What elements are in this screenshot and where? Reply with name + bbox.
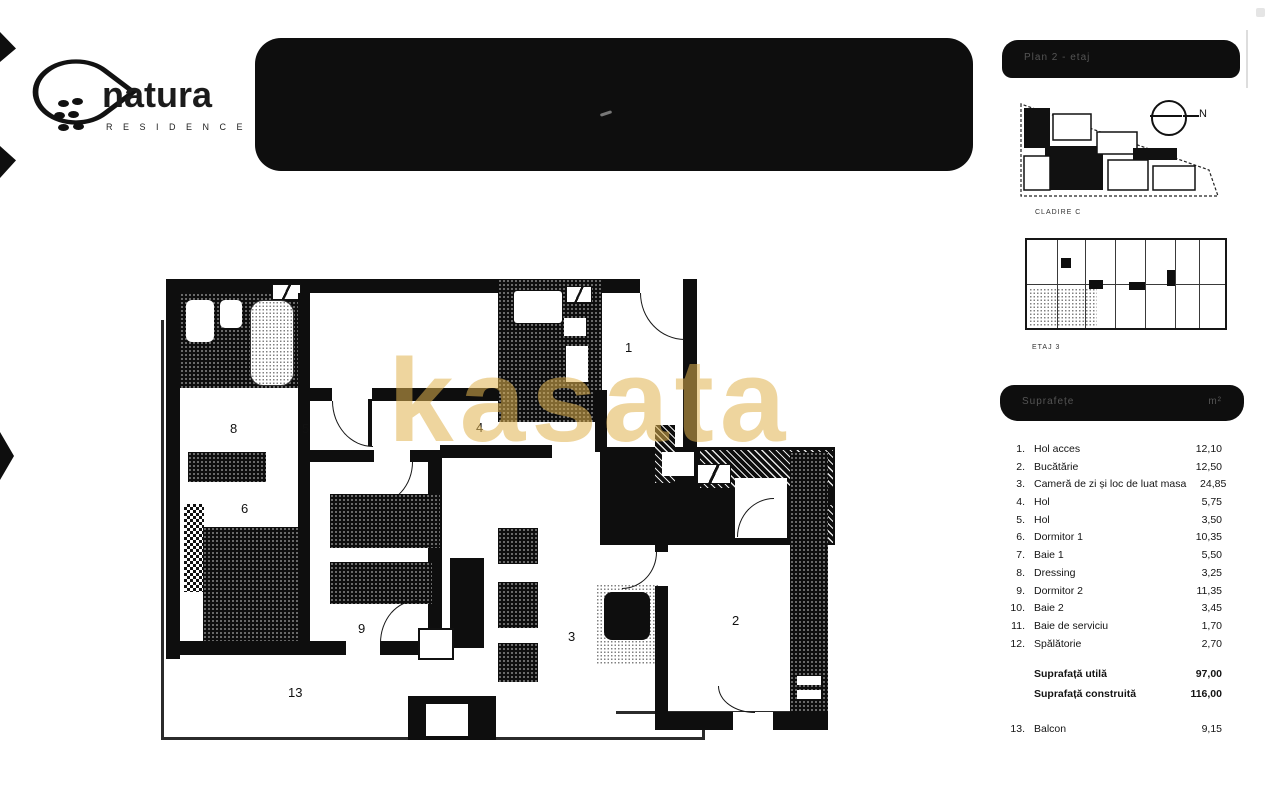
areas-header-bar: Suprafețe m² [1000,385,1244,421]
room-number-dorm2: 9 [358,621,365,636]
bed [203,527,300,643]
room-number-kitchen: 2 [732,613,739,628]
wardrobe [188,452,266,482]
table-row: 6.Dormitor 110,35 [1005,531,1222,549]
furniture [498,582,538,628]
room-number-living: 3 [568,629,575,644]
wall [298,293,310,400]
entrance-door-arc [640,293,685,340]
table-row: 1.Hol acces12,10 [1005,443,1222,461]
sink-symbol [797,690,821,699]
table-row: 10.Baie 23,45 [1005,602,1222,620]
storey-plan [1025,238,1227,330]
areas-header-left: Suprafețe [1022,396,1074,407]
table-row: 5.Hol3,50 [1005,514,1222,532]
site-plan: N [1013,96,1233,208]
vent-symbol [566,286,592,303]
bed [330,494,440,548]
table-row: 4.Hol5,75 [1005,496,1222,514]
table-row: 11.Baie de serviciu1,70 [1005,620,1222,638]
compass-north-label: N [1199,108,1207,120]
room-number-hol5: 5 [302,421,309,436]
totals: Suprafață utilă97,00 Suprafață construit… [1005,668,1222,708]
door-leaf [368,399,372,446]
washer [514,291,562,323]
table-row: 13.Balcon9,15 [1005,723,1222,741]
room-area-list: 1.Hol acces12,10 2.Bucătărie12,50 3.Came… [1005,443,1222,655]
storey-plan-label: ETAJ 3 [1032,344,1060,351]
total-usable-area: Suprafață utilă97,00 [1005,668,1222,688]
vent-symbol [697,464,731,484]
wall [178,641,418,655]
scanned-floorplan-page: natura R E S I D E N C E [0,0,1280,795]
kitchen-counter [790,452,828,728]
sink [564,318,586,336]
door-gap [655,552,668,586]
storey-plan-highlight [1029,288,1097,326]
bookshelf [450,558,484,648]
stove-symbol [797,676,821,685]
door-arc [332,401,373,447]
table-row: 12.Spălătorie2,70 [1005,638,1222,656]
balcony-row: 13.Balcon9,15 [1005,723,1222,741]
sink [186,300,214,342]
door-arc [718,686,755,713]
kasata-watermark: kasata [388,342,791,460]
areas-header-right: m² [1208,396,1222,407]
door-gap [346,641,380,655]
bathtub [250,300,294,386]
wall [166,279,697,293]
scan-artifact [1256,8,1265,17]
door-gap [332,388,372,401]
table-row: 9.Dormitor 211,35 [1005,585,1222,603]
balcony-outline [161,320,164,740]
table-row: 2.Bucătărie12,50 [1005,461,1222,479]
plan-header-text: Plan 2 - etaj [1024,52,1090,63]
site-plan-label: CLADIRE C [1035,209,1081,216]
wall [166,279,180,659]
door-gap [640,279,684,293]
radiator [184,504,204,592]
plan-header-bar: Plan 2 - etaj [1002,40,1240,78]
threshold [418,628,454,660]
room-number-balcony: 13 [288,685,302,700]
terrace-steps-inner [426,704,468,736]
total-built-area: Suprafață construită116,00 [1005,688,1222,708]
door-gap [733,712,773,730]
toilet [220,300,242,328]
compass-icon: N [1151,100,1211,136]
room-number-dorm1: 6 [241,501,248,516]
scan-artifact [1246,30,1248,88]
table-row: 7.Baie 15,50 [1005,549,1222,567]
table-row: 3.Cameră de zi și loc de luat masa24,85 [1005,478,1222,496]
room-number-dressing: 8 [230,421,237,436]
door-arc [380,600,417,643]
furniture [498,528,538,564]
vent-symbol [272,284,301,300]
table-top [604,592,650,640]
table-row: 8.Dressing3,25 [1005,567,1222,585]
furniture [498,643,538,682]
bed [330,562,432,604]
